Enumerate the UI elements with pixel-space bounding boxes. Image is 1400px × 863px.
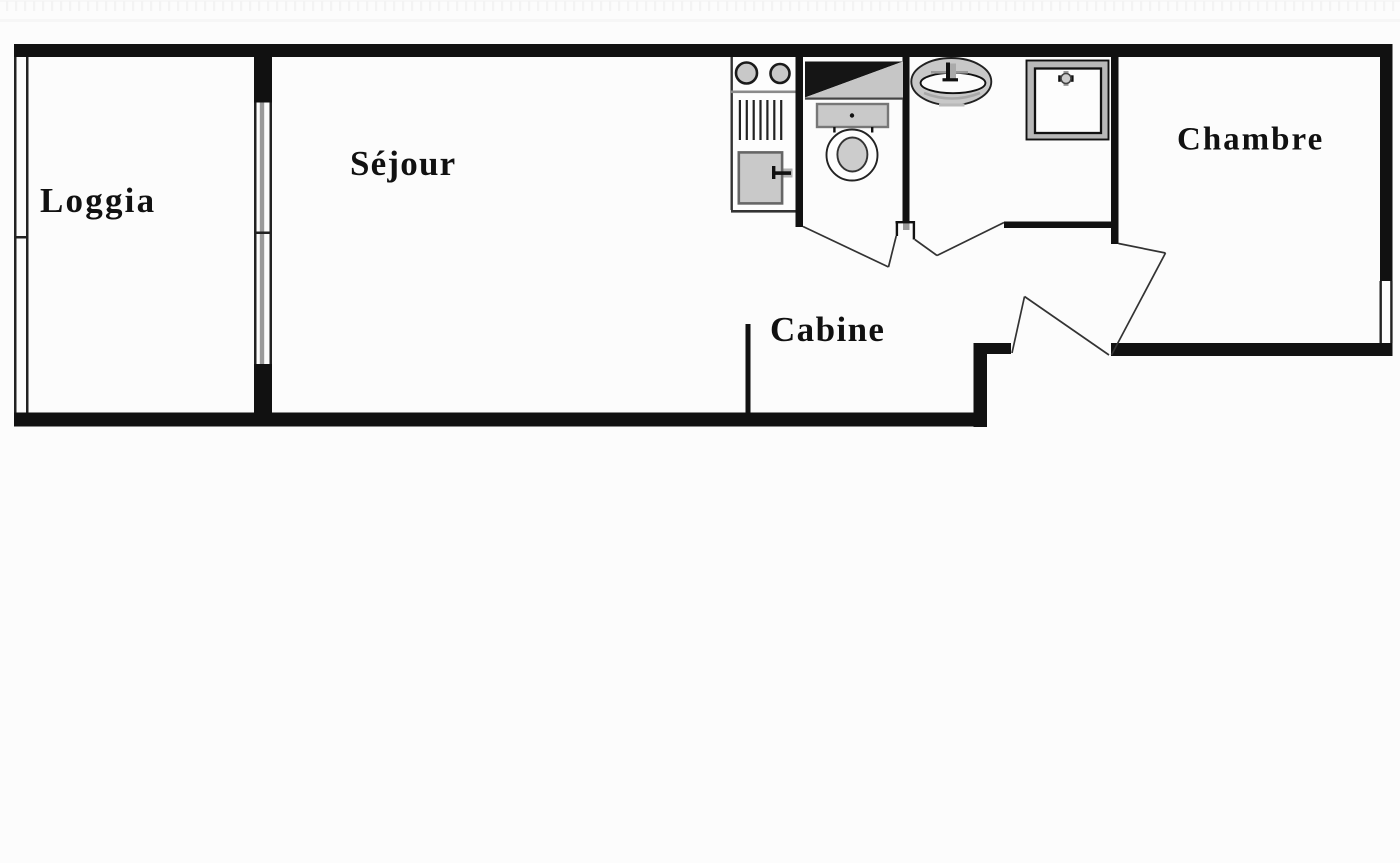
svg-text:Loggia: Loggia (40, 181, 156, 220)
svg-text:Séjour: Séjour (350, 144, 456, 183)
svg-text:Chambre: Chambre (1177, 122, 1324, 158)
svg-text:Cabine: Cabine (770, 310, 885, 349)
